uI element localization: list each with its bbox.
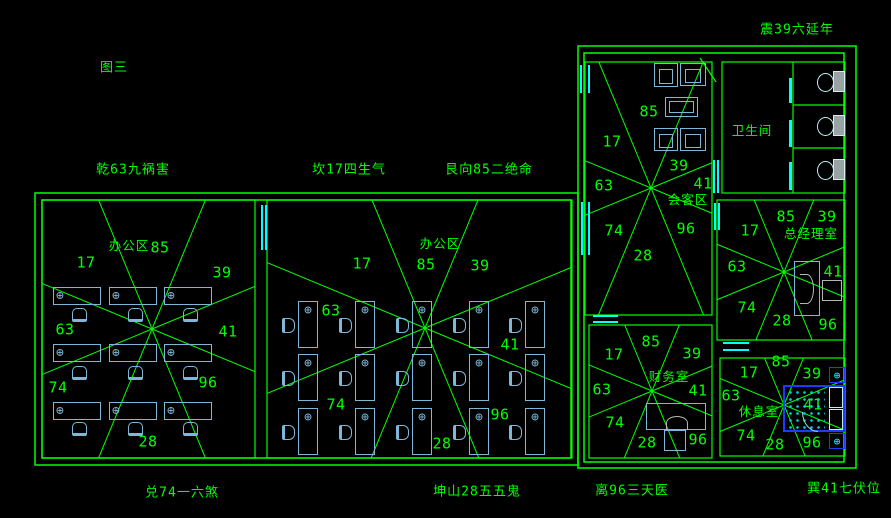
coffee-table: [665, 97, 698, 117]
workstation-icon: ⊕: [361, 304, 369, 317]
desk: ⊕: [109, 402, 157, 420]
desk: ⊕: [164, 287, 212, 305]
star-number-office-left-63: 63: [55, 323, 74, 338]
star-number-reception-28: 28: [633, 249, 652, 264]
window-6: [714, 203, 720, 230]
desk: ⊕: [355, 354, 375, 401]
window-0: [580, 65, 590, 93]
pillow: [829, 409, 843, 430]
desk: ⊕: [298, 408, 318, 455]
sofa-cushion: [685, 69, 701, 83]
chair: [128, 422, 143, 436]
chair: [183, 308, 198, 322]
desk: ⊕: [298, 354, 318, 401]
desk: ⊕: [355, 408, 375, 455]
room-label-finance: 财务室: [649, 371, 690, 384]
star-number-reception-17: 17: [602, 135, 621, 150]
desk: ⊕: [469, 301, 489, 348]
workstation-icon: ⊕: [418, 304, 426, 317]
desk: ⊕: [164, 402, 212, 420]
desk: ⊕: [109, 344, 157, 362]
desk: ⊕: [469, 354, 489, 401]
workstation-icon: ⊕: [531, 304, 539, 317]
chair: [396, 425, 409, 440]
chair: [396, 371, 409, 386]
sofa: [680, 63, 706, 86]
star-number-office-left-28: 28: [138, 435, 157, 450]
kan-label: 坎17四生气: [312, 164, 386, 177]
sofa-cushion: [659, 69, 673, 84]
star-number-reception-63: 63: [594, 179, 613, 194]
chair: [509, 425, 522, 440]
sofa: [680, 128, 706, 151]
desk: ⊕: [525, 408, 545, 455]
desk: ⊕: [469, 408, 489, 455]
star-number-rest-room-96: 96: [802, 436, 821, 451]
sofa: [654, 63, 678, 87]
chair: [282, 425, 295, 440]
room-label-bathroom: 卫生间: [732, 125, 773, 138]
star-number-office-mid-74: 74: [326, 398, 345, 413]
star-number-office-mid-96: 96: [490, 408, 509, 423]
star-number-office-left-39: 39: [212, 266, 231, 281]
workstation-icon: ⊕: [56, 290, 64, 303]
desk: ⊕: [109, 287, 157, 305]
star-number-gm-office-74: 74: [737, 301, 756, 316]
star-number-office-mid-28: 28: [432, 437, 451, 452]
chair: [183, 422, 198, 436]
chair: [183, 366, 198, 380]
workstation-icon: ⊕: [112, 290, 120, 303]
toilet-bowl: [817, 161, 834, 180]
star-number-office-left-41: 41: [218, 325, 237, 340]
gen-label: 艮向85二绝命: [445, 164, 533, 177]
desk: ⊕: [525, 301, 545, 348]
toilet-tank: [833, 71, 845, 92]
star-number-office-mid-39: 39: [470, 259, 489, 274]
workstation-icon: ⊕: [304, 304, 312, 317]
star-ray-office-mid: [425, 328, 572, 389]
star-number-finance-39: 39: [682, 347, 701, 362]
star-number-gm-office-63: 63: [727, 260, 746, 275]
toilet-bowl: [817, 117, 834, 136]
star-number-rest-room-74: 74: [736, 429, 755, 444]
desk: ⊕: [53, 402, 101, 420]
chair: [282, 371, 295, 386]
window-5: [713, 160, 719, 193]
star-number-rest-room-17: 17: [739, 366, 758, 381]
chair: [128, 308, 143, 322]
qian-label: 乾63九祸害: [96, 164, 170, 177]
star-number-finance-17: 17: [604, 348, 623, 363]
window-3: [261, 205, 267, 250]
workstation-icon: ⊕: [304, 357, 312, 370]
workstation-icon: ⊕: [531, 411, 539, 424]
chair: [282, 318, 295, 333]
workstation-icon: ⊕: [112, 405, 120, 418]
desk: ⊕: [53, 344, 101, 362]
workstation-icon: ⊕: [112, 347, 120, 360]
star-number-gm-office-41: 41: [823, 265, 842, 280]
gm-desk-curve: [800, 274, 814, 304]
star-number-office-mid-85: 85: [416, 258, 435, 273]
workstation-icon: ⊕: [531, 357, 539, 370]
nightstand-icon: ⊕: [834, 436, 841, 447]
star-number-finance-28: 28: [637, 436, 656, 451]
xun-label: 巽41七伏位: [807, 483, 881, 496]
star-number-finance-74: 74: [605, 416, 624, 431]
star-number-office-left-74: 74: [48, 381, 67, 396]
workstation-icon: ⊕: [361, 357, 369, 370]
kun-label: 坤山28五五鬼: [433, 486, 521, 499]
star-number-rest-room-85: 85: [771, 355, 790, 370]
gm-chair: [822, 280, 842, 301]
toilet-tank: [833, 159, 845, 180]
chair: [72, 366, 87, 380]
chair: [453, 318, 466, 333]
desk: ⊕: [298, 301, 318, 348]
coffee-table-top: [669, 101, 694, 113]
star-number-finance-63: 63: [592, 383, 611, 398]
desk: ⊕: [53, 287, 101, 305]
workstation-icon: ⊕: [418, 411, 426, 424]
workstation-icon: ⊕: [418, 357, 426, 370]
star-number-reception-39: 39: [669, 159, 688, 174]
star-number-finance-96: 96: [688, 433, 707, 448]
dui-label: 兑74一六煞: [145, 487, 219, 500]
chair: [396, 318, 409, 333]
floorplan-canvas: 办公区1785396341749628办公区1785396341749628会客…: [0, 0, 891, 518]
finance-desk-curve: [666, 416, 688, 430]
workstation-icon: ⊕: [304, 411, 312, 424]
stall-door-1: [789, 120, 792, 147]
star-number-office-mid-41: 41: [500, 338, 519, 353]
chair: [339, 371, 352, 386]
workstation-icon: ⊕: [475, 411, 483, 424]
star-number-office-left-17: 17: [76, 256, 95, 271]
nightstand-icon: ⊕: [834, 370, 841, 381]
sofa-cushion: [659, 134, 673, 148]
chair: [509, 371, 522, 386]
toilet-tank: [833, 115, 845, 136]
star-number-office-left-96: 96: [198, 376, 217, 391]
star-number-reception-74: 74: [604, 224, 623, 239]
star-ray-office-mid: [425, 267, 572, 328]
toilet-bowl: [817, 73, 834, 92]
finance-chair: [664, 430, 686, 451]
star-number-gm-office-28: 28: [772, 314, 791, 329]
workstation-icon: ⊕: [56, 405, 64, 418]
chair: [339, 318, 352, 333]
star-number-office-mid-17: 17: [352, 257, 371, 272]
sofa-cushion: [685, 134, 701, 148]
desk: ⊕: [412, 408, 432, 455]
pillow: [829, 387, 843, 408]
workstation-icon: ⊕: [167, 290, 175, 303]
workstation-icon: ⊕: [475, 357, 483, 370]
chair: [128, 366, 143, 380]
desk: ⊕: [355, 301, 375, 348]
star-number-finance-85: 85: [641, 335, 660, 350]
window-1: [581, 202, 590, 255]
workstation-icon: ⊕: [361, 411, 369, 424]
desk: ⊕: [525, 354, 545, 401]
star-number-gm-office-85: 85: [776, 210, 795, 225]
star-number-reception-85: 85: [639, 105, 658, 120]
workstation-icon: ⊕: [475, 304, 483, 317]
workstation-icon: ⊕: [167, 405, 175, 418]
figure-title-label: 图三: [100, 62, 128, 75]
room-label-reception: 会客区: [668, 194, 709, 207]
room-label-office-left: 办公区: [109, 240, 150, 253]
star-number-gm-office-39: 39: [817, 210, 836, 225]
stall-door-2: [789, 162, 792, 190]
desk: ⊕: [412, 301, 432, 348]
room-label-office-mid: 办公区: [420, 238, 461, 251]
zhen-label: 震39六延年: [760, 24, 834, 37]
room-label-rest-room: 休息室: [739, 406, 780, 419]
desk: ⊕: [412, 354, 432, 401]
window-4: [723, 342, 749, 351]
star-number-rest-room-28: 28: [765, 438, 784, 453]
star-number-rest-room-39: 39: [802, 367, 821, 382]
star-number-reception-41: 41: [693, 177, 712, 192]
star-number-office-mid-63: 63: [321, 304, 340, 319]
li-label: 离96三天医: [595, 485, 669, 498]
chair: [72, 308, 87, 322]
workstation-icon: ⊕: [56, 347, 64, 360]
star-number-finance-41: 41: [688, 384, 707, 399]
star-number-rest-room-63: 63: [721, 389, 740, 404]
star-number-gm-office-17: 17: [740, 224, 759, 239]
nightstand: ⊕: [829, 367, 845, 383]
star-number-reception-96: 96: [676, 222, 695, 237]
chair: [72, 422, 87, 436]
chair: [453, 425, 466, 440]
chair: [339, 425, 352, 440]
chair: [453, 371, 466, 386]
window-2: [593, 315, 618, 323]
workstation-icon: ⊕: [167, 347, 175, 360]
desk: ⊕: [164, 344, 212, 362]
stall-door-0: [789, 78, 792, 103]
star-number-gm-office-96: 96: [818, 318, 837, 333]
room-label-gm-office: 总经理室: [784, 228, 838, 241]
star-number-office-left-85: 85: [150, 241, 169, 256]
nightstand: ⊕: [829, 433, 845, 449]
chair: [509, 318, 522, 333]
sofa: [654, 128, 678, 151]
